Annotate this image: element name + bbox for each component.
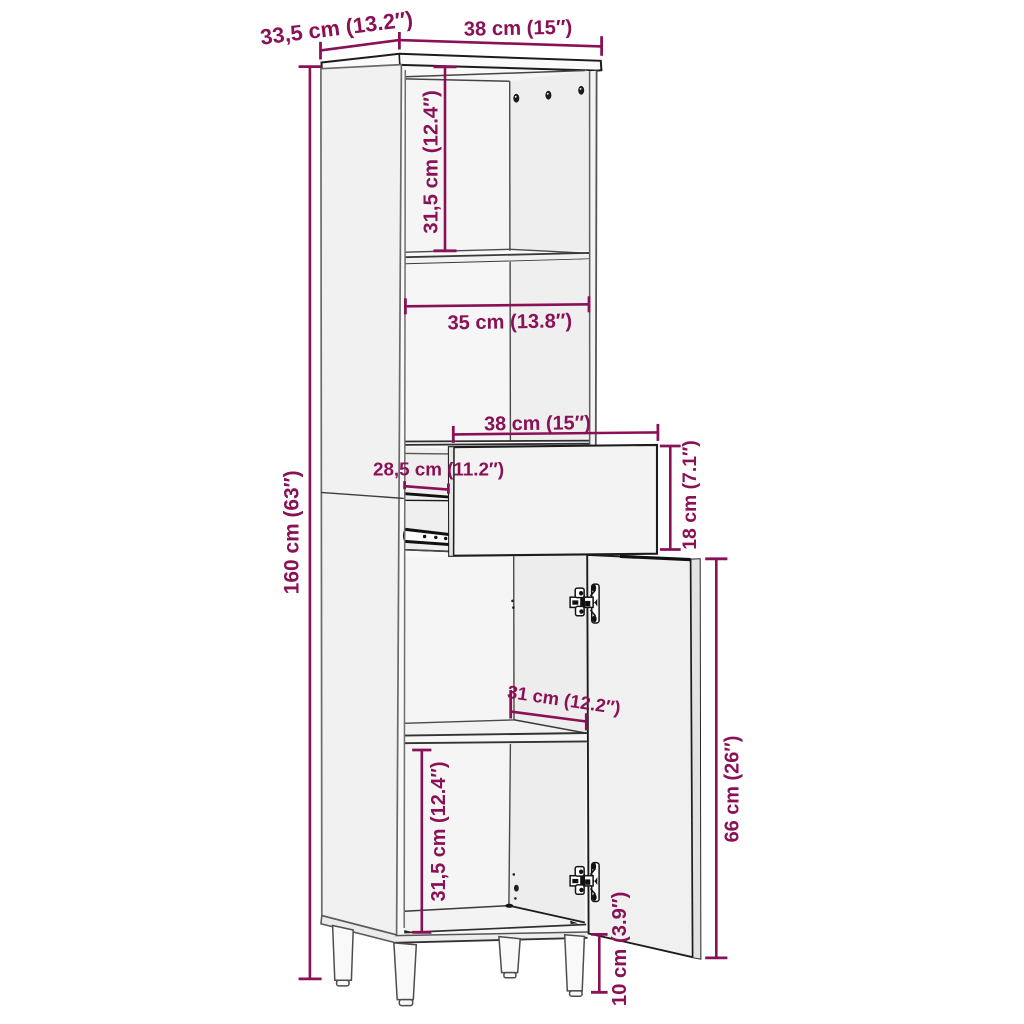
svg-text:66 cm (26″): 66 cm (26″) bbox=[721, 736, 743, 843]
svg-text:35 cm (13.8″): 35 cm (13.8″) bbox=[447, 310, 572, 334]
svg-text:38 cm (15″): 38 cm (15″) bbox=[484, 412, 591, 435]
svg-text:160 cm (63″): 160 cm (63″) bbox=[281, 470, 304, 594]
svg-text:18 cm (7.1″): 18 cm (7.1″) bbox=[679, 440, 701, 550]
svg-text:31,5 cm (12.4″): 31,5 cm (12.4″) bbox=[420, 90, 442, 234]
svg-text:10 cm (3.9″): 10 cm (3.9″) bbox=[609, 892, 631, 1007]
svg-text:31,5 cm (12.4″): 31,5 cm (12.4″) bbox=[428, 761, 450, 901]
svg-text:28,5 cm (11.2″): 28,5 cm (11.2″) bbox=[373, 458, 504, 479]
svg-text:38 cm (15″): 38 cm (15″) bbox=[464, 17, 573, 41]
